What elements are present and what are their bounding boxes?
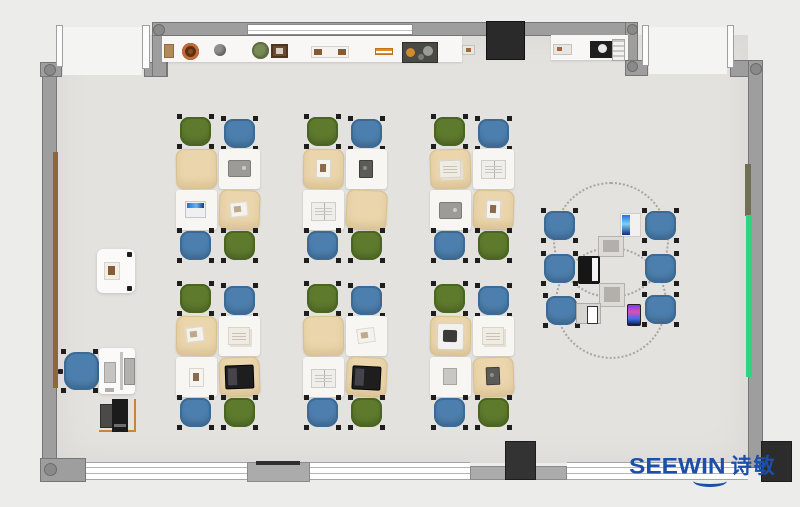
- chair-seat: [434, 398, 465, 427]
- desk-tan: [472, 356, 514, 397]
- desk-item-display: [185, 201, 206, 218]
- door-left-1: [56, 25, 63, 67]
- desk-item-photo: [316, 159, 331, 178]
- printer-slot: [114, 424, 126, 427]
- desk-tan: [345, 189, 388, 231]
- chair-seat: [544, 254, 575, 283]
- chair-seat: [645, 295, 676, 324]
- collab-chair-blue: [543, 253, 576, 284]
- chair-green: [477, 397, 510, 428]
- chair-green: [350, 397, 383, 428]
- bottom-window-1: [86, 462, 247, 480]
- desk-white: [219, 149, 260, 189]
- keyboard: [104, 362, 116, 383]
- chair-seat: [478, 231, 509, 260]
- desk-tan: [218, 189, 260, 230]
- chair-blue: [223, 285, 256, 316]
- desk-item-book: [311, 369, 336, 388]
- shelf-item-speaker: [590, 41, 613, 58]
- chair-blue: [179, 230, 212, 261]
- teacher-chair: [63, 351, 100, 391]
- wood-rail-left-wall: [53, 152, 58, 388]
- bottom-pillar-dark: [505, 441, 536, 480]
- desk-tan: [176, 149, 218, 190]
- chair-seat: [351, 398, 382, 427]
- desk-tan: [429, 148, 471, 189]
- chair-green: [350, 230, 383, 261]
- chair-seat: [307, 398, 338, 427]
- chair-seat: [351, 231, 382, 260]
- chair-seat: [307, 231, 338, 260]
- olive-board-right-wall: [745, 164, 751, 216]
- chair-seat: [180, 231, 211, 260]
- collab-device-laptop-blue-screen: [620, 213, 641, 237]
- seewin-logo: SEEWIN 诗敏: [629, 454, 777, 478]
- shelf-item-picture-frame: [271, 44, 288, 58]
- chair-seat: [434, 284, 465, 313]
- shelf-item-pot: [182, 43, 199, 60]
- desk-white: [346, 316, 387, 356]
- chair-blue: [306, 397, 339, 428]
- shelf-item-small-tray: [553, 44, 572, 55]
- shelf-item-tray: [311, 46, 349, 58]
- desk-item-laptop: [228, 160, 251, 177]
- chair-seat: [478, 119, 509, 148]
- desk-tan: [430, 316, 472, 357]
- door-left-2: [142, 25, 150, 69]
- chair-seat: [645, 254, 676, 283]
- chair-seat: [351, 119, 382, 148]
- chair-seat: [180, 398, 211, 427]
- desk-white: [303, 190, 344, 230]
- desk-item-book: [481, 160, 506, 179]
- desk-item-papers: [482, 327, 504, 345]
- bottom-pillar-top-line: [256, 461, 300, 465]
- green-board-right-wall: [746, 215, 752, 377]
- desk-cluster-4: [176, 283, 260, 430]
- chair-seat: [64, 352, 99, 390]
- chair-seat: [224, 398, 255, 427]
- chair-green: [433, 116, 466, 147]
- seewin-logo-chinese: 诗敏: [731, 456, 777, 477]
- chair-blue: [223, 118, 256, 149]
- chair-green: [179, 283, 212, 314]
- chair-green: [477, 230, 510, 261]
- shelf-item-rack: [612, 39, 625, 61]
- desk-item-tablet: [359, 160, 373, 178]
- chair-green: [306, 116, 339, 147]
- top-wall-window: [247, 24, 413, 35]
- pillar-dot: [750, 63, 762, 75]
- desk-item-paper: [185, 326, 205, 343]
- chair-seat: [546, 296, 577, 325]
- door-right-1: [642, 25, 649, 66]
- desk-item-tablet: [486, 367, 501, 385]
- chair-seat: [434, 231, 465, 260]
- monitor-stand: [120, 352, 123, 390]
- shelf-item-orange-rails: [375, 48, 393, 55]
- chair-blue: [179, 397, 212, 428]
- desk-item-laptop-stand: [437, 323, 464, 350]
- chair-seat: [307, 117, 338, 146]
- floorplan-stage: SEEWIN 诗敏: [0, 0, 800, 507]
- desk-item-laptop-black: [225, 365, 255, 390]
- desk-cluster-1: [176, 116, 260, 263]
- cabinet-item-detail: [108, 266, 115, 275]
- shelf-item-box: [164, 44, 174, 58]
- chair-green: [179, 116, 212, 147]
- desk-item-book: [311, 202, 336, 221]
- collab-device-smartphone: [627, 304, 641, 326]
- pillar-dot: [627, 24, 638, 35]
- chair-seat: [478, 286, 509, 315]
- desk-tan: [176, 316, 218, 357]
- chair-blue: [306, 230, 339, 261]
- shelf-item-small-tray: [462, 45, 475, 55]
- chair-green: [306, 283, 339, 314]
- side-cabinet: [97, 249, 135, 293]
- pillar-dot: [44, 64, 56, 76]
- desk-item-photo: [486, 200, 502, 220]
- desk-item-papers: [439, 160, 462, 179]
- tv-screen: [486, 21, 525, 60]
- chair-green: [223, 397, 256, 428]
- desk-cluster-5: [303, 283, 387, 430]
- entrance-right-threshold: [649, 27, 727, 74]
- desk-item-laptop-black: [351, 365, 381, 390]
- chair-seat: [645, 211, 676, 240]
- chair-seat: [180, 284, 211, 313]
- desk-item-tablet: [443, 368, 457, 385]
- door-right-2: [727, 25, 734, 68]
- chair-seat: [224, 286, 255, 315]
- desk-white: [473, 149, 514, 189]
- desk-item-papers: [228, 327, 250, 345]
- pillar-dot: [153, 24, 165, 36]
- chair-seat: [434, 117, 465, 146]
- chair-blue: [433, 230, 466, 261]
- chair-seat: [224, 231, 255, 260]
- chair-seat: [180, 117, 211, 146]
- desk-item-laptop: [439, 202, 462, 219]
- chair-green: [223, 230, 256, 261]
- shelf-item-toolbox: [402, 42, 438, 63]
- desk-tan: [303, 316, 345, 357]
- chair-blue: [433, 397, 466, 428]
- teacher-desk: [99, 348, 135, 394]
- entrance-left-threshold: [63, 27, 142, 75]
- desk-tan: [303, 149, 345, 190]
- collab-chair-blue: [543, 210, 576, 241]
- desk-cluster-2: [303, 116, 387, 263]
- desk-item-paper: [229, 201, 248, 218]
- cabinet-hinge: [127, 286, 132, 291]
- collab-device-tablet: [598, 236, 624, 257]
- chair-seat: [544, 211, 575, 240]
- desk-item-paper: [356, 327, 376, 344]
- desk-white: [430, 190, 471, 230]
- collab-chair-blue: [644, 253, 677, 284]
- desk-white: [176, 190, 217, 230]
- desk-cluster-3: [430, 116, 514, 263]
- chair-green: [433, 283, 466, 314]
- desk-white: [176, 357, 217, 397]
- printer-top: [112, 399, 128, 432]
- desk-white: [473, 316, 514, 356]
- pillar-dot: [627, 61, 638, 72]
- bottom-pillar-gray: [247, 462, 310, 482]
- desk-white: [346, 149, 387, 189]
- chair-seat: [224, 119, 255, 148]
- collab-chair-blue: [644, 294, 677, 325]
- chair-seat: [478, 398, 509, 427]
- chair-blue: [350, 285, 383, 316]
- desk-cluster-6: [430, 283, 514, 430]
- collab-device-laptop-white: [576, 303, 601, 324]
- chair-blue: [477, 285, 510, 316]
- collab-device-tablet: [599, 283, 625, 307]
- seewin-logo-smile-icon: [693, 475, 727, 487]
- monitor: [124, 358, 135, 385]
- desk-white: [219, 316, 260, 356]
- pillar-dot: [44, 463, 57, 476]
- desk-tan: [345, 356, 388, 398]
- chair-seat: [307, 284, 338, 313]
- collab-chair-blue: [545, 295, 578, 326]
- cabinet-hinge: [127, 252, 132, 257]
- teacher-chair-leg: [58, 369, 63, 374]
- bottom-window-2: [310, 462, 470, 480]
- desk-white: [430, 357, 471, 397]
- collab-chair-blue: [644, 210, 677, 241]
- shelf-item-sphere: [214, 44, 226, 56]
- chair-blue: [477, 118, 510, 149]
- desk-accessory: [105, 388, 114, 392]
- desk-tan: [472, 189, 514, 230]
- desk-item-photo: [189, 368, 204, 387]
- desk-white: [303, 357, 344, 397]
- chair-seat: [351, 286, 382, 315]
- collab-device-laptop-black: [578, 256, 600, 284]
- desk-tan: [218, 356, 260, 397]
- chair-blue: [350, 118, 383, 149]
- shelf-item-plant: [252, 42, 269, 59]
